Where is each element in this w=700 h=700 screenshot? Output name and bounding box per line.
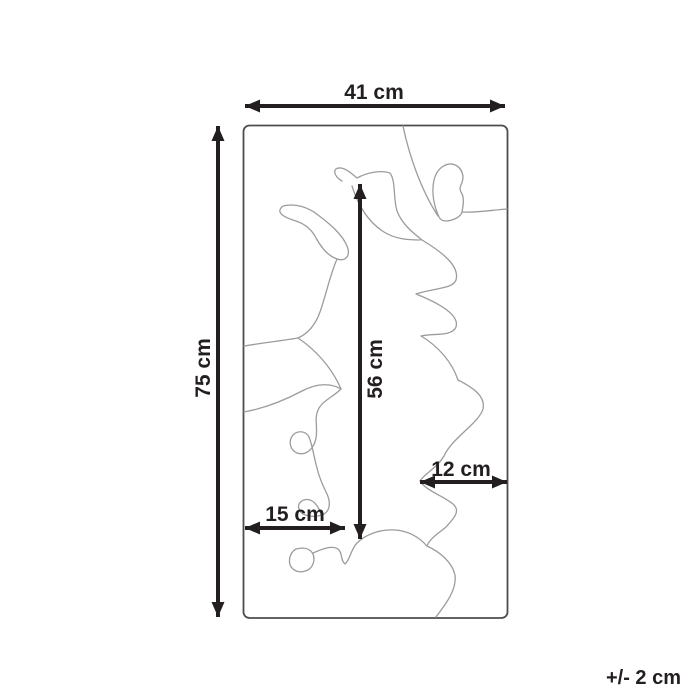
height-dimension-label: 75 cm — [192, 338, 215, 398]
pattern-curve — [313, 530, 427, 564]
pattern-curve — [462, 209, 507, 212]
pattern-curve — [298, 259, 337, 338]
pattern-curve — [290, 389, 341, 516]
pattern-curve — [335, 168, 422, 240]
pattern-curve — [433, 164, 463, 221]
inner-height-dimension: 56 cm — [360, 184, 387, 539]
pattern-curve — [416, 240, 483, 546]
inner-height-dimension-label: 56 cm — [364, 339, 387, 399]
inner-right-width-dimension: 12 cm — [420, 458, 507, 482]
pattern-curve — [298, 338, 341, 389]
tolerance-label: +/- 2 cm — [606, 667, 681, 689]
inner-left-width-dimension: 15 cm — [245, 503, 345, 528]
inner-right-width-dimension-label: 12 cm — [431, 458, 491, 481]
pattern-curve — [244, 338, 298, 346]
height-dimension: 75 cm — [192, 126, 218, 617]
width-dimension: 41 cm — [245, 81, 505, 106]
pattern-curve — [352, 186, 420, 240]
pattern-curve — [244, 385, 341, 412]
product-dimension-diagram: 41 cm 75 cm 56 cm 15 cm 12 cm +/- 2 cm — [0, 0, 700, 700]
inner-left-width-dimension-label: 15 cm — [265, 503, 325, 526]
pattern-curve — [427, 546, 455, 617]
pattern-curve — [403, 126, 438, 216]
pattern-curve — [289, 548, 314, 572]
pattern-curve — [280, 205, 349, 260]
width-dimension-label: 41 cm — [344, 81, 404, 104]
dimension-diagram-page: 41 cm 75 cm 56 cm 15 cm 12 cm +/- 2 cm — [0, 0, 700, 700]
